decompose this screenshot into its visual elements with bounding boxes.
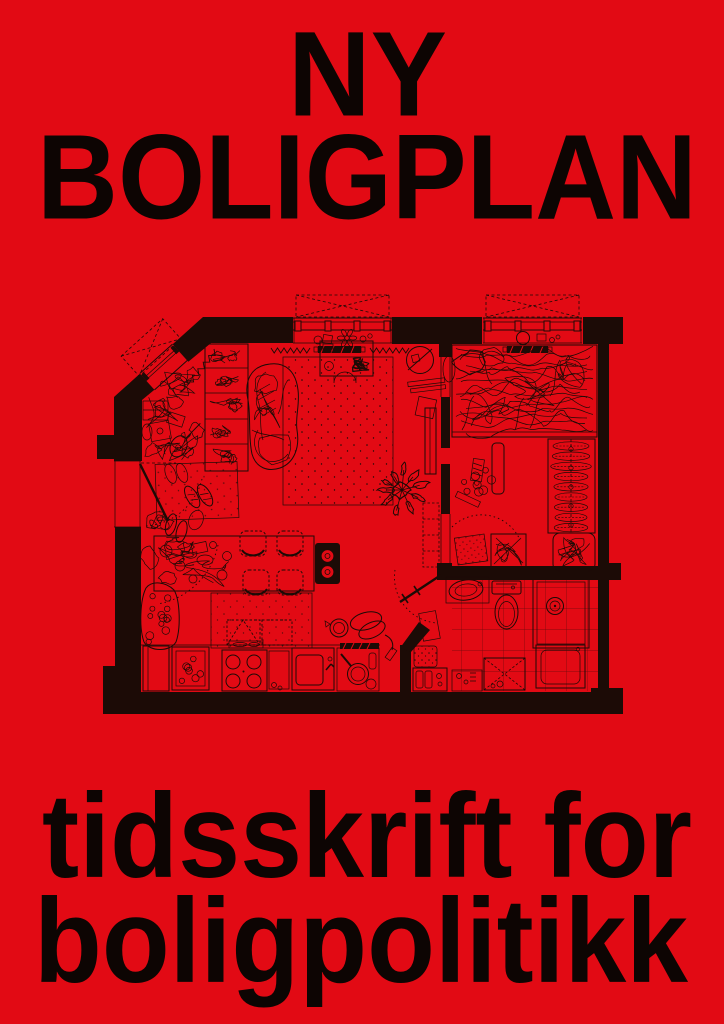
svg-text:BOLIGPLAN: BOLIGPLAN (37, 110, 697, 245)
svg-text:boligpolitikk: boligpolitikk (34, 874, 688, 1008)
